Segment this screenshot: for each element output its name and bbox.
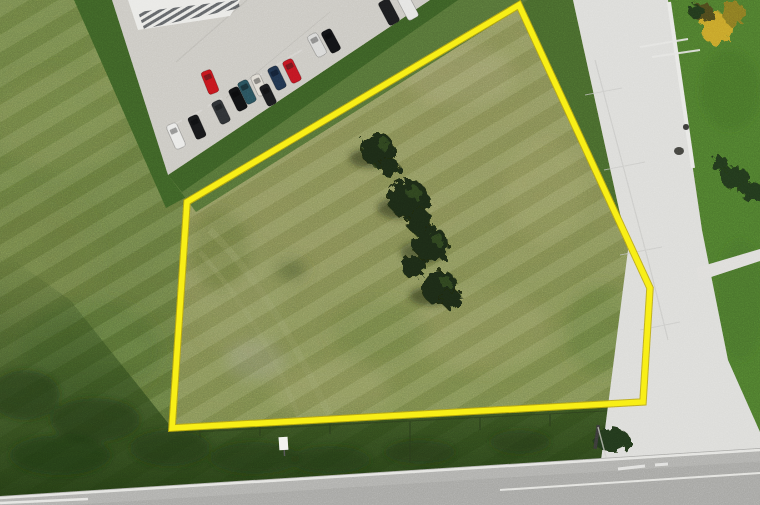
aerial-photo xyxy=(0,0,760,505)
photo-grain xyxy=(0,0,760,505)
